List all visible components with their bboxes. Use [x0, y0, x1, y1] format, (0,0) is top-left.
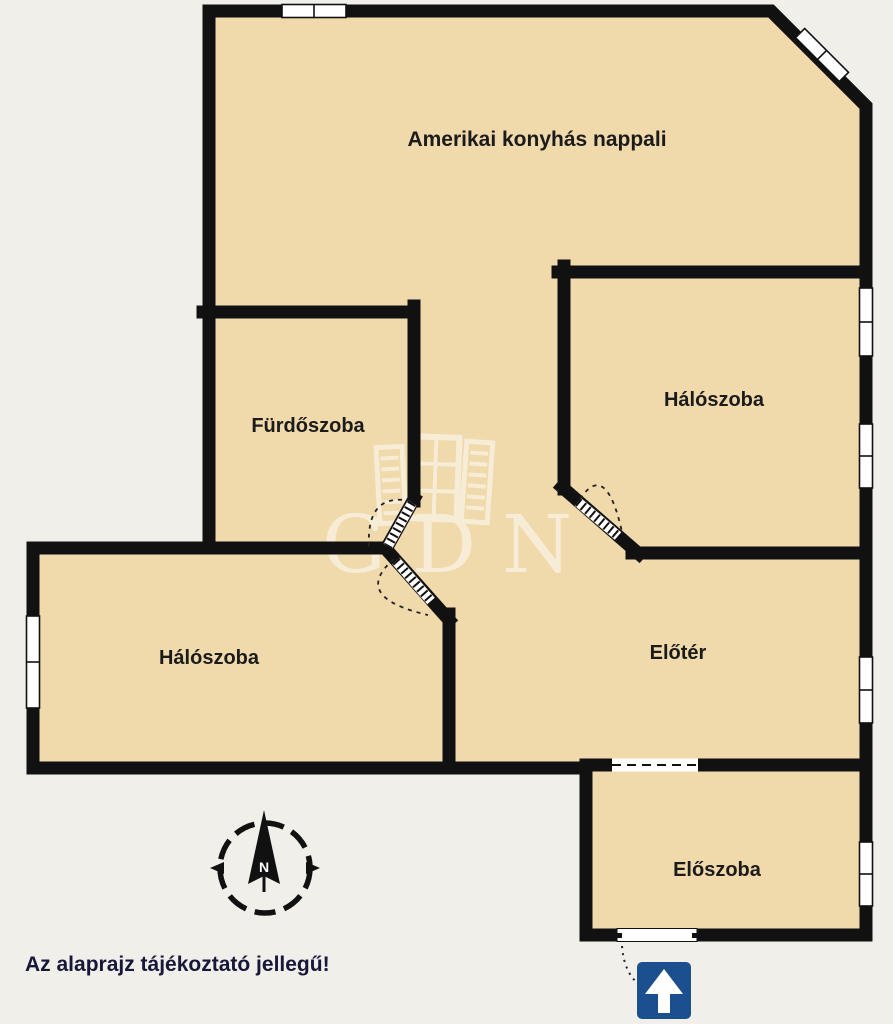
room-label-entry: Előszoba	[673, 859, 762, 881]
window	[860, 424, 873, 488]
room-label-hall: Előtér	[650, 642, 707, 664]
window	[282, 5, 346, 18]
floorplan-svg: GDN	[0, 0, 893, 1024]
compass-n-label: N	[259, 859, 269, 875]
room-label-bathroom: Fürdőszoba	[251, 415, 365, 437]
disclaimer-note: Az alaprajz tájékoztató jellegű!	[25, 953, 330, 976]
room-label-bedroom2: Hálószoba	[159, 647, 260, 669]
entrance-arrow-icon	[637, 962, 691, 1019]
room-label-living: Amerikai konyhás nappali	[407, 128, 666, 151]
floorplan-canvas: GDN	[0, 0, 893, 1024]
window	[860, 842, 873, 906]
window	[860, 288, 873, 356]
window	[27, 616, 40, 708]
hall-entry-opening	[612, 759, 698, 772]
window	[860, 657, 873, 723]
room-label-bedroom1: Hálószoba	[664, 389, 765, 411]
